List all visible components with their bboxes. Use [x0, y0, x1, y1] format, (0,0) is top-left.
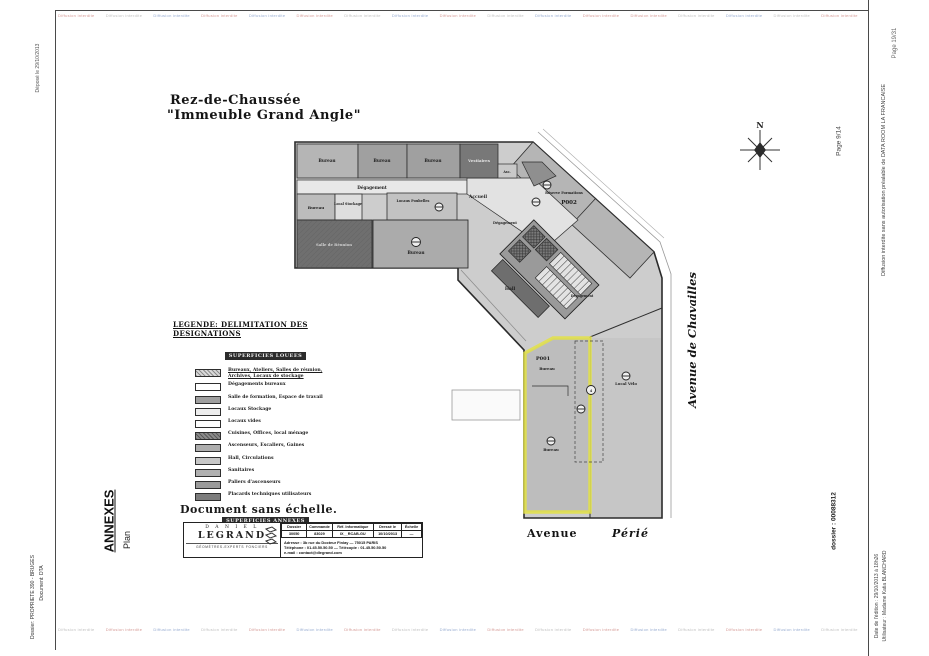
legend-item-label: Ascenseurs, Escaliers, Gaines	[228, 443, 304, 449]
watermark-stamp: Diffusion interdite	[535, 627, 572, 632]
watermark-row-top: Diffusion interditeDiffusion interditeDi…	[58, 13, 858, 18]
room-local-velo	[591, 338, 661, 517]
legend-item: Sanitaires	[195, 468, 358, 477]
svg-text:Vestiaires: Vestiaires	[467, 158, 491, 163]
deposited-date-label: Déposé le 29/10/2013	[35, 44, 41, 93]
watermark-stamp: Diffusion interdite	[440, 627, 477, 632]
page-number-corner: Page 19/31	[892, 28, 898, 59]
watermark-stamp: Diffusion interdite	[201, 13, 238, 18]
legend-item-label: Hall, Circulations	[228, 456, 274, 462]
watermark-stamp: Diffusion interdite	[58, 13, 95, 18]
legend-swatch	[195, 444, 221, 452]
legend-item: Locaux vides	[195, 419, 358, 428]
watermark-stamp: Diffusion interdite	[678, 13, 715, 18]
edition-date: Date de l'édition : 29/10/2013 à 18h26	[874, 554, 880, 638]
legend-item-label: Locaux vides	[228, 419, 261, 425]
legend-item-label: Sanitaires	[228, 468, 254, 474]
watermark-stamp: Diffusion interdite	[297, 13, 334, 18]
dossier-right-number: dossier : 00088312	[831, 492, 838, 550]
firm-identity: D A N I E L LEGRAND GÉOMÈTRES-EXPERTS FO…	[184, 523, 281, 557]
frame-top-line	[55, 10, 868, 11]
watermark-stamp: Diffusion interdite	[821, 627, 858, 632]
legend-swatch	[195, 481, 221, 489]
legend-item: Locaux Stockage	[195, 407, 358, 416]
svg-text:Local Vélo: Local Vélo	[615, 381, 637, 386]
legend-item: Paliers d'ascenseurs	[195, 480, 358, 489]
watermark-stamp: Diffusion interdite	[535, 13, 572, 18]
street-avenue-de-chavailles: Avenue de Chavailles	[685, 272, 699, 408]
p001-area	[525, 338, 590, 512]
legend-item: Salle de formation, Espace de travail	[195, 395, 358, 404]
street-perie: Périé	[612, 527, 649, 540]
diffusion-notice: Diffusion interdite sans autorisation pr…	[881, 84, 887, 276]
legend-swatch	[195, 383, 221, 391]
svg-text:P001: P001	[536, 356, 550, 362]
svg-text:Bureau: Bureau	[543, 447, 559, 452]
legend-item-label: Cuisines, Offices, local ménage	[228, 431, 308, 437]
edition-user: Utilisateur : Madame Katia BLANCHARD	[882, 551, 888, 642]
legend-item: Dégagements bureaux	[195, 382, 358, 391]
svg-text:Dégagement: Dégagement	[571, 294, 594, 298]
watermark-stamp: Diffusion interdite	[297, 627, 334, 632]
watermark-stamp: Diffusion interdite	[487, 13, 524, 18]
watermark-stamp: Diffusion interdite	[726, 13, 763, 18]
legend-item: Hall, Circulations	[195, 456, 358, 465]
svg-text:Bureau: Bureau	[407, 250, 424, 255]
legend-items: Bureaux, Ateliers, Salles de réunion,Arc…	[173, 368, 358, 501]
watermark-stamp: Diffusion interdite	[392, 13, 429, 18]
legend-section-louees: SUPERFICIES LOUEES	[225, 352, 307, 360]
svg-text:Bureau: Bureau	[424, 158, 441, 163]
plan-title-line2: "Immeuble Grand Angle"	[167, 108, 361, 123]
frame-right-line	[868, 0, 869, 656]
svg-text:Locaux Poubelles: Locaux Poubelles	[397, 199, 430, 203]
plan-title-line1: Rez-de-Chaussée	[170, 93, 301, 108]
watermark-stamp: Diffusion interdite	[583, 13, 620, 18]
watermark-stamp: Diffusion interdite	[344, 627, 381, 632]
svg-text:Local Stockage: Local Stockage	[334, 202, 362, 206]
svg-text:Accueil: Accueil	[468, 195, 487, 200]
watermark-row-bottom: Diffusion interditeDiffusion interditeDi…	[58, 627, 858, 632]
frame-left-line	[55, 10, 56, 650]
svg-text:Dégagement: Dégagement	[493, 221, 517, 225]
terrace	[452, 390, 520, 420]
svg-text:Bureau: Bureau	[539, 366, 555, 371]
watermark-stamp: Diffusion interdite	[249, 13, 286, 18]
legend-item-label: Placards techniques utilisateurs	[228, 492, 311, 498]
watermark-stamp: Diffusion interdite	[630, 627, 667, 632]
svg-text:Bureau: Bureau	[308, 205, 325, 210]
scale-note: Document sans échelle.	[180, 503, 337, 516]
legend-swatch	[195, 457, 221, 465]
page-number-mid: Page 9/14	[836, 126, 843, 156]
watermark-stamp: Diffusion interdite	[678, 627, 715, 632]
annexes-label: ANNEXES	[102, 490, 117, 553]
legend-swatch	[195, 469, 221, 477]
plan-label: Plan	[122, 531, 132, 549]
svg-text:Hall: Hall	[505, 287, 516, 292]
svg-text:Bureau: Bureau	[373, 158, 390, 163]
watermark-stamp: Diffusion interdite	[58, 627, 95, 632]
legend-swatch	[195, 396, 221, 404]
watermark-stamp: Diffusion interdite	[487, 627, 524, 632]
firm-logo-icon	[263, 526, 279, 548]
legend-swatch	[195, 408, 221, 416]
watermark-stamp: Diffusion interdite	[249, 627, 286, 632]
legend-item: Placards techniques utilisateurs	[195, 492, 358, 501]
north-compass-icon: N	[737, 116, 783, 174]
svg-text:Salle de Réunion: Salle de Réunion	[316, 242, 352, 247]
dossier-left-line2: Document: DTA	[39, 565, 45, 600]
legend-swatch	[195, 420, 221, 428]
watermark-stamp: Diffusion interdite	[774, 627, 811, 632]
watermark-stamp: Diffusion interdite	[774, 13, 811, 18]
legend-item: Ascenseurs, Escaliers, Gaines	[195, 443, 358, 452]
legend-item: Cuisines, Offices, local ménage	[195, 431, 358, 440]
legend-title: LEGENDE: DELIMITATION DES DESIGNATIONS	[173, 320, 358, 338]
svg-text:N: N	[756, 120, 763, 130]
watermark-stamp: Diffusion interdite	[392, 627, 429, 632]
watermark-stamp: Diffusion interdite	[153, 13, 190, 18]
legend-item-label: Bureaux, Ateliers, Salles de réunion,Arc…	[228, 368, 322, 379]
svg-text:Asc.: Asc.	[502, 170, 510, 174]
watermark-stamp: Diffusion interdite	[201, 627, 238, 632]
watermark-stamp: Diffusion interdite	[106, 627, 143, 632]
title-block: D A N I E L LEGRAND GÉOMÈTRES-EXPERTS FO…	[183, 522, 423, 558]
legend-item-label: Paliers d'ascenseurs	[228, 480, 280, 486]
watermark-stamp: Diffusion interdite	[440, 13, 477, 18]
svg-text:P002: P002	[561, 200, 577, 206]
title-block-table: Dossier Commande Réf. Informatique Dress…	[281, 523, 422, 538]
legend-item-label: Dégagements bureaux	[228, 382, 286, 388]
legend-swatch	[195, 369, 221, 377]
dossier-left-line1: Dossier: PROPRIETE 390 - BRUGES	[30, 555, 36, 639]
watermark-stamp: Diffusion interdite	[344, 13, 381, 18]
svg-text:Réserve Formations: Réserve Formations	[545, 191, 583, 195]
svg-text:Dégagement: Dégagement	[357, 185, 387, 190]
watermark-stamp: Diffusion interdite	[821, 13, 858, 18]
watermark-stamp: Diffusion interdite	[630, 13, 667, 18]
legend-item-label: Salle de formation, Espace de travail	[228, 395, 323, 401]
legend-swatch	[195, 432, 221, 440]
legend-swatch	[195, 493, 221, 501]
svg-text:Bureau: Bureau	[318, 158, 335, 163]
legend-item-label: Locaux Stockage	[228, 407, 271, 413]
street-avenue: Avenue	[527, 527, 577, 540]
legend-item: Bureaux, Ateliers, Salles de réunion,Arc…	[195, 368, 358, 379]
watermark-stamp: Diffusion interdite	[106, 13, 143, 18]
watermark-stamp: Diffusion interdite	[583, 627, 620, 632]
watermark-stamp: Diffusion interdite	[726, 627, 763, 632]
firm-email: e-mail : contact@dlegrand.com	[284, 550, 419, 555]
watermark-stamp: Diffusion interdite	[153, 627, 190, 632]
scanned-document-page: Diffusion interditeDiffusion interditeDi…	[0, 0, 929, 656]
